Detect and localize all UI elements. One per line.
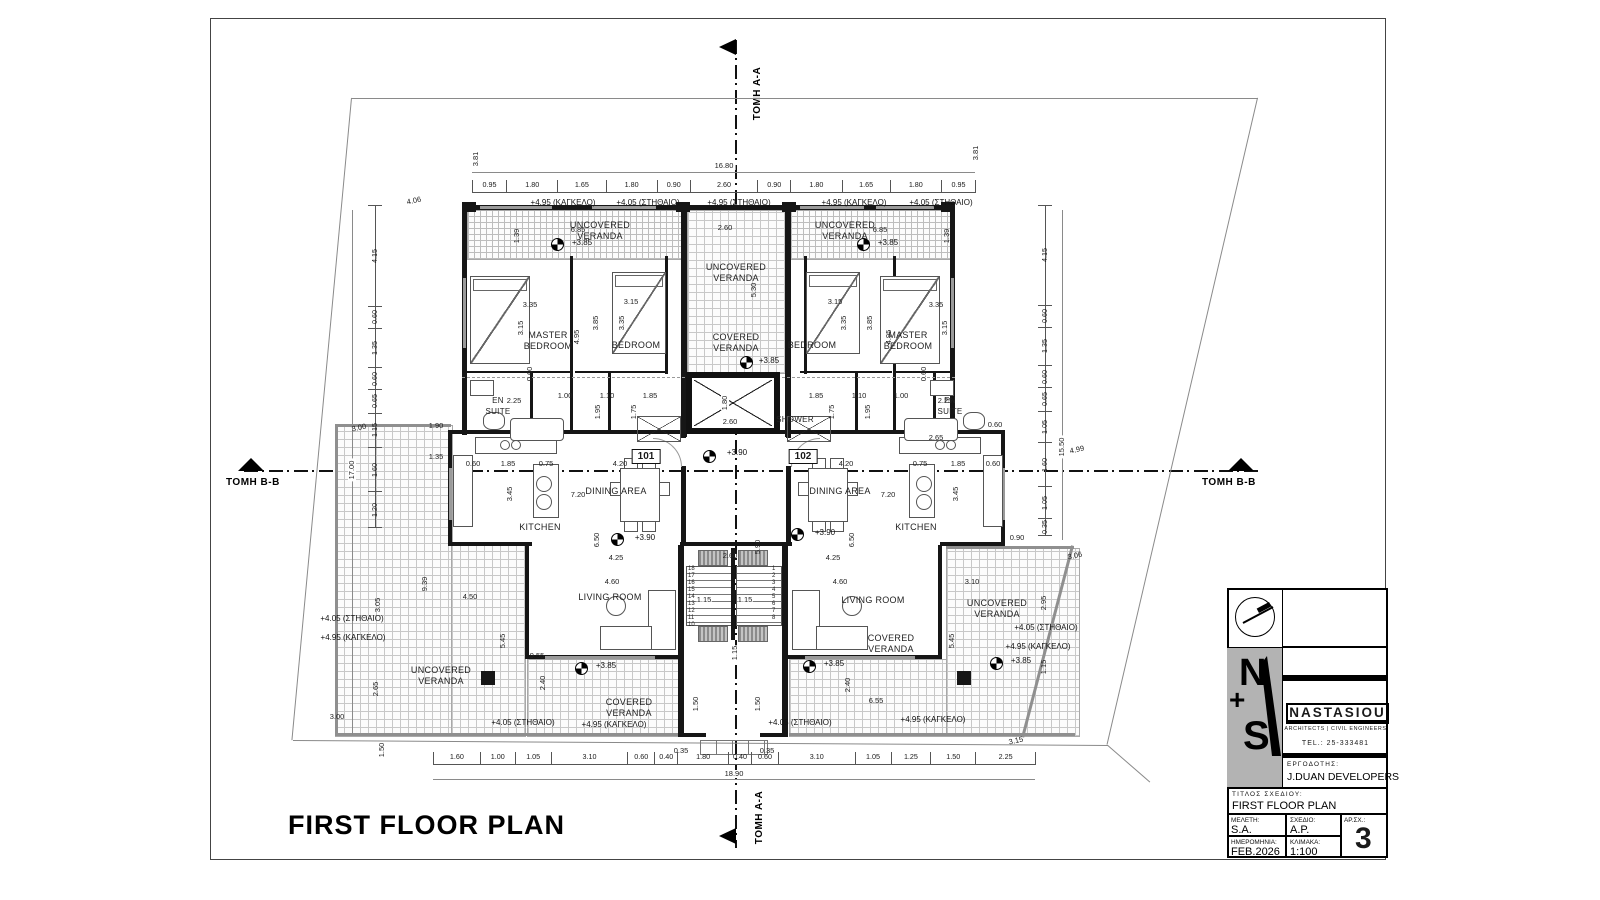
- wall: [785, 205, 791, 437]
- date-value: FEB.2026: [1231, 846, 1280, 858]
- dim: 5.90: [754, 540, 762, 555]
- dim: 1.00: [894, 392, 909, 400]
- landing-mat: [698, 626, 728, 642]
- dim: 1.75: [828, 405, 836, 420]
- room-label-living-room: LIVING ROOM: [841, 595, 904, 606]
- dim-segment: 0.60: [627, 752, 654, 765]
- dim: 1.75: [630, 405, 638, 420]
- dim-17: 17.00: [348, 459, 356, 482]
- dim: 3.45: [952, 487, 960, 502]
- veranda-hatch-left-b: [451, 545, 526, 737]
- parapet: [789, 733, 1075, 736]
- dim-segment: 4.15: [1038, 205, 1052, 305]
- study-value: S.A.: [1231, 824, 1252, 836]
- dim-line-1550: [1062, 210, 1063, 540]
- dim-segment: 1.80: [890, 180, 941, 193]
- level-annotation: +4.95 (ΚΑΓΚΕΛΟ): [1006, 642, 1071, 651]
- dim-chain-top: 0.951.801.651.800.902.600.901.801.651.80…: [472, 180, 976, 193]
- level-symbol-icon: [703, 450, 716, 463]
- dim-segment: 1.05: [1038, 486, 1052, 518]
- stair-number: 2: [772, 573, 775, 580]
- dim-segment: 4.15: [368, 205, 382, 306]
- dim-total-bottom: 18.90: [723, 770, 746, 778]
- dim-segment: 1.00: [480, 752, 515, 765]
- dim: 3.81: [972, 146, 980, 161]
- level-symbol-icon: [990, 657, 1003, 670]
- dim: 4.60: [833, 578, 848, 586]
- stair-number: 5: [772, 594, 775, 601]
- date-label: ΗΜΕΡΟΜΗΝΙΑ:: [1231, 839, 1277, 846]
- column: [957, 671, 971, 685]
- window: [449, 468, 452, 520]
- shower-tray: [637, 416, 681, 442]
- level-annotation: +4.05 (ΣΤΗΘΑΙΟ): [1014, 623, 1077, 632]
- dim: 3.35: [523, 301, 538, 309]
- dim: 4.20: [839, 460, 854, 468]
- sink: [916, 494, 932, 510]
- dim: 1.39: [943, 229, 951, 244]
- dim: 2.40: [539, 676, 547, 691]
- room-label-dining-area: DINING AREA: [585, 486, 646, 497]
- level-symbol-icon: [740, 356, 753, 369]
- unit-number-101: 101: [632, 449, 661, 464]
- dim-segment: 1.65: [842, 180, 890, 193]
- stair-number: 6: [772, 601, 775, 608]
- dim: 3.85: [866, 316, 874, 331]
- wall: [678, 733, 706, 737]
- dim: 1.85: [809, 392, 824, 400]
- level-symbol-icon: [803, 660, 816, 673]
- dim: 2.65: [372, 682, 380, 697]
- section-bb-arrow-left-icon: [238, 458, 264, 471]
- dim-chain-left: 4.150.601.350.600.651.151.601.20: [368, 205, 382, 528]
- level-symbol-icon: [575, 662, 588, 675]
- dim: 1.50: [754, 697, 762, 712]
- dim: 4.95: [573, 330, 581, 345]
- wall: [462, 371, 572, 373]
- wall: [680, 542, 792, 546]
- wall: [608, 372, 611, 432]
- dim: 1.10: [600, 392, 615, 400]
- sofa: [600, 626, 652, 650]
- room-label-uncovered-veranda: UNCOVERED VERANDA: [706, 262, 766, 283]
- chair: [642, 521, 656, 532]
- room-label-bedroom: BEDROOM: [788, 340, 837, 351]
- spot-level: +3.85: [878, 238, 898, 247]
- room-label-covered-veranda: COVERED VERANDA: [713, 332, 760, 353]
- sink: [916, 476, 932, 492]
- sofa: [648, 590, 676, 650]
- stair-number: 8: [772, 615, 775, 622]
- level-annotation: +4.95 (ΣΤΗΘΑΙΟ): [707, 198, 770, 207]
- wall: [575, 371, 667, 373]
- title-block-divider: [1285, 813, 1287, 858]
- dim: 0.60: [526, 367, 534, 382]
- dim: 4.50: [463, 593, 478, 601]
- stair-number: 10: [688, 622, 695, 629]
- dim-segment: 1.35: [1038, 327, 1052, 365]
- dim: 4.25: [609, 554, 624, 562]
- wall: [855, 372, 858, 432]
- firm-name: NASTASIOU: [1286, 703, 1389, 724]
- dim-segment: 1.60: [433, 752, 480, 765]
- wall: [760, 733, 788, 737]
- hob-burner: [511, 440, 521, 450]
- spot-level: +3.85: [596, 661, 616, 670]
- dim-segment: 1.50: [930, 752, 975, 765]
- chair: [798, 482, 809, 496]
- north-arrow-box: [1227, 588, 1283, 648]
- level-annotation: +4.95 (ΚΑΓΚΕΛΟ): [901, 715, 966, 724]
- drawing-title-value: FIRST FLOOR PLAN: [1232, 800, 1336, 812]
- dim: 1.85: [643, 392, 658, 400]
- dim-segment: 1.25: [891, 752, 931, 765]
- title-block-divider: [1340, 813, 1342, 858]
- dim: 5.30: [750, 283, 758, 298]
- stair-number: 14: [688, 594, 695, 601]
- level-annotation: +4.95 (ΚΑΓΚΕΛΟ): [582, 720, 647, 729]
- dim: 3.35: [840, 316, 848, 331]
- column: [782, 202, 796, 212]
- level-symbol-icon: [551, 238, 564, 251]
- landing-mat: [738, 626, 768, 642]
- hob-burner: [500, 440, 510, 450]
- level-symbol-icon: [611, 533, 624, 546]
- level-annotation: +4.95 (ΚΑΓΚΕΛΟ): [321, 633, 386, 642]
- room-label-living-room: LIVING ROOM: [578, 592, 641, 603]
- dim: 0.75: [539, 460, 554, 468]
- stair-divider: [731, 548, 735, 640]
- sheet-number-value: 3: [1355, 822, 1372, 856]
- dim: 1.95: [594, 405, 602, 420]
- client-label: ΕΡΓΟΔΟΤΗΣ:: [1287, 761, 1339, 768]
- dim-segment: 1.35: [368, 328, 382, 367]
- dim-segment: 1.05: [515, 752, 551, 765]
- room-label-uncovered-veranda: UNCOVERED VERANDA: [815, 220, 875, 241]
- dim: 3.85: [592, 316, 600, 331]
- dim: 2.60: [723, 418, 738, 426]
- dim-segment: 1.60: [1038, 442, 1052, 486]
- wall: [782, 545, 788, 737]
- dim: 7.20: [881, 491, 896, 499]
- dim: 0.60: [920, 367, 928, 382]
- section-aa-label-bottom: TOMH A-A: [754, 791, 765, 844]
- dim-segment: 0.95: [472, 180, 506, 193]
- section-aa-arrow-top-icon: [719, 39, 736, 55]
- dim: 3.00: [330, 713, 345, 721]
- dim: 0.35: [674, 747, 689, 755]
- study-label: ΜΕΛΕΤΗ:: [1231, 817, 1259, 824]
- dim: 1.90: [429, 422, 444, 430]
- site-boundary-top: [352, 98, 1258, 99]
- spot-level: +3.85: [1011, 656, 1031, 665]
- room-label-kitchen: KITCHEN: [895, 522, 937, 533]
- dim-segment: 3.10: [551, 752, 628, 765]
- logo-cell: N + S: [1227, 648, 1283, 787]
- room-label-en-suite: EN SUITE: [485, 396, 510, 417]
- door-opening: [681, 438, 686, 466]
- drawing-title-label: ΤΙΤΛΟΣ ΣΧΕΔΙΟΥ:: [1232, 791, 1303, 798]
- wall: [938, 545, 942, 659]
- window: [545, 656, 655, 659]
- room-label-uncovered-veranda: UNCOVERED VERANDA: [570, 220, 630, 241]
- dim: 1.00: [558, 392, 573, 400]
- dim: 1.39: [513, 229, 521, 244]
- dim-total-line-top: [472, 172, 975, 173]
- parapet: [946, 546, 1074, 549]
- spot-level: +3.90: [727, 448, 747, 457]
- stair-numbers-down: 181716151413121110: [688, 566, 695, 629]
- stair-numbers-up: 12345678: [772, 566, 775, 622]
- dim: 9.39: [421, 577, 429, 592]
- stair-number: 16: [688, 580, 695, 587]
- dim-segment: 1.80: [506, 180, 557, 193]
- dim: 1.50: [692, 697, 700, 712]
- spot-level: +3.85: [759, 356, 779, 365]
- room-label-kitchen: KITCHEN: [519, 522, 561, 533]
- dim: 3.35: [618, 316, 626, 331]
- dim-segment: 0.60: [1038, 365, 1052, 387]
- window: [463, 278, 466, 348]
- dim-segment: 1.80: [790, 180, 841, 193]
- dim: 0.35: [760, 747, 775, 755]
- logo-bar: [1283, 675, 1388, 681]
- dim: 1.15: [731, 646, 739, 661]
- firm-subtitle: ARCHITECTS | CIVIL ENGINEERS: [1284, 726, 1387, 732]
- dim: 3.45: [506, 487, 514, 502]
- dim: 1.95: [864, 405, 872, 420]
- dim-segment: 1.80: [606, 180, 657, 193]
- dim: 7.20: [571, 491, 586, 499]
- dim: 6.50: [848, 533, 856, 548]
- dim-segment: 1.60: [368, 447, 382, 491]
- chair: [624, 521, 638, 532]
- section-aa-label-top: TOMH A-A: [752, 67, 763, 120]
- dim-segment: 0.60: [1038, 305, 1052, 327]
- dim-segment: 0.90: [657, 180, 690, 193]
- dim: 4.20: [613, 460, 628, 468]
- spot-level: +3.90: [635, 533, 655, 542]
- dim: 2.40: [844, 678, 852, 693]
- stair-number: 1: [772, 566, 775, 573]
- stair-number: 17: [688, 573, 695, 580]
- plan-title: FIRST FLOOR PLAN: [288, 810, 565, 841]
- column: [481, 671, 495, 685]
- dim-total-top: 16.80: [713, 162, 736, 170]
- dim: 3.81: [472, 152, 480, 167]
- sink: [536, 476, 552, 492]
- stair-number: 3: [772, 580, 775, 587]
- logo-letter-s: S: [1243, 716, 1270, 756]
- room-label-bedroom: BEDROOM: [612, 340, 661, 351]
- parapet: [335, 733, 688, 736]
- dim-chain-right: 4.150.601.350.600.651.051.601.050.35: [1038, 205, 1052, 536]
- wall: [678, 545, 684, 737]
- stair-number: 7: [772, 608, 775, 615]
- dim: 3.35: [929, 301, 944, 309]
- stair-number: 18: [688, 566, 695, 573]
- dim-segment: 0.65: [1038, 387, 1052, 410]
- dim: 3.15: [941, 321, 949, 336]
- spot-level: +3.85: [824, 659, 844, 668]
- dim-segment: 1.65: [557, 180, 605, 193]
- window: [805, 656, 915, 659]
- chair: [659, 482, 670, 496]
- dim-segment: 0.95: [941, 180, 975, 193]
- dim: 3.10: [965, 578, 980, 586]
- logo-letter-plus: +: [1229, 686, 1245, 714]
- spot-level: +3.90: [815, 528, 835, 537]
- room-label-dining-area: DINING AREA: [809, 486, 870, 497]
- dim: 6.50: [593, 533, 601, 548]
- room-label-en-suite: EN SUITE: [937, 396, 962, 417]
- dim-segment: 3.10: [778, 752, 855, 765]
- stair-number: 13: [688, 601, 695, 608]
- wall: [940, 542, 1005, 546]
- dim-segment: 0.65: [368, 389, 382, 412]
- dim-segment: 2.25: [975, 752, 1035, 765]
- dim: 1.35: [429, 453, 444, 461]
- dim-segment: 0.90: [757, 180, 790, 193]
- dim: 3.15: [828, 298, 843, 306]
- dim: 2.60: [718, 224, 733, 232]
- drawn-label: ΣΧΕΔΙΟ:: [1290, 817, 1315, 824]
- dim: 1.50: [378, 743, 386, 758]
- stair-number: 15: [688, 587, 695, 594]
- column: [462, 202, 476, 212]
- level-annotation: +4.05 (ΣΤΗΘΑΙΟ): [768, 718, 831, 727]
- window: [951, 278, 954, 348]
- level-annotation: +4.05 (ΣΤΗΘΑΙΟ): [616, 198, 679, 207]
- client-name: J.DUAN DEVELOPERS: [1287, 771, 1399, 783]
- dim-segment: 1.05: [855, 752, 891, 765]
- hob-burner: [946, 440, 956, 450]
- parapet: [335, 424, 338, 735]
- dim: 1.85: [951, 460, 966, 468]
- dim: 0.75: [913, 460, 928, 468]
- washbasin: [930, 380, 954, 396]
- dim: 1.80: [721, 396, 729, 411]
- room-label-covered-veranda: COVERED VERANDA: [606, 697, 653, 718]
- dim: 5.45: [499, 634, 507, 649]
- dim-segment: 0.60: [368, 367, 382, 389]
- logo-bar: [1283, 753, 1388, 758]
- section-bb-label-right: TOMH B-B: [1202, 477, 1256, 488]
- room-label-covered-veranda: COVERED VERANDA: [868, 633, 915, 654]
- room-label-master-bedroom: MASTER BEDROOM: [524, 330, 573, 351]
- title-block-divider: [1283, 646, 1388, 648]
- stair-number: 12: [688, 608, 695, 615]
- drawn-value: A.P.: [1290, 824, 1309, 836]
- dim: 2.60: [723, 552, 738, 560]
- dim: 0.90: [1010, 534, 1025, 542]
- bathtub: [510, 418, 564, 441]
- dim: 0.60: [466, 460, 481, 468]
- room-label-uncovered-veranda: UNCOVERED VERANDA: [411, 665, 471, 686]
- dim: 4.60: [605, 578, 620, 586]
- dim-1550: 15.50: [1058, 436, 1066, 459]
- dim-chain-bottom: 1.601.001.053.100.600.401.800.400.603.10…: [433, 752, 1036, 765]
- dim-segment: 1.05: [1038, 411, 1052, 443]
- dim: 9.55: [530, 652, 545, 660]
- scale-value: 1:100: [1290, 846, 1318, 858]
- scale-label: ΚΛΙΜΑΚΑ:: [1290, 839, 1320, 846]
- dim-segment: 0.40: [728, 752, 751, 765]
- wall: [448, 542, 532, 546]
- dim: 1.15: [738, 596, 753, 604]
- stair-number: 11: [688, 615, 695, 622]
- dim: 4.25: [826, 554, 841, 562]
- level-annotation: +4.05 (ΣΤΗΘΑΙΟ): [320, 614, 383, 623]
- dim-segment: 0.60: [368, 306, 382, 328]
- level-symbol-icon: [791, 528, 804, 541]
- dim: 1.85: [501, 460, 516, 468]
- dim-total-line-bottom: [433, 779, 1035, 780]
- dim: 0.60: [988, 421, 1003, 429]
- stair-number: 4: [772, 587, 775, 594]
- sofa: [816, 626, 868, 650]
- drawing-sheet: TOMH A-A TOMH A-A TOMH B-B TOMH B-B: [0, 0, 1600, 900]
- dim-segment: 2.60: [690, 180, 757, 193]
- dim: 3.05: [374, 598, 382, 613]
- room-label-shower: SHOWER: [776, 415, 814, 426]
- room-label-master-bedroom: MASTER BEDROOM: [884, 330, 933, 351]
- dim: 1.10: [852, 392, 867, 400]
- dim: 2.65: [929, 434, 944, 442]
- section-bb-arrow-right-icon: [1228, 458, 1254, 471]
- level-annotation: +4.95 (ΚΑΓΚΕΛΟ): [822, 198, 887, 207]
- washbasin: [470, 380, 494, 396]
- dim-segment: 0.35: [1038, 518, 1052, 535]
- dim-segment: 1.15: [368, 413, 382, 447]
- unit-number-102: 102: [789, 449, 818, 464]
- dim-segment: 1.20: [368, 491, 382, 527]
- level-annotation: +4.05 (ΣΤΗΘΑΙΟ): [491, 718, 554, 727]
- title-block-divider: [1227, 813, 1388, 815]
- dim: 2.95: [1040, 596, 1048, 611]
- wall: [800, 371, 892, 373]
- firm-telephone: TEL.: 25-333481: [1284, 740, 1387, 747]
- section-aa-arrow-bottom-icon: [719, 828, 736, 844]
- wall: [525, 545, 529, 659]
- dim: 3.15: [624, 298, 639, 306]
- room-label-uncovered-veranda: UNCOVERED VERANDA: [967, 598, 1027, 619]
- sink: [536, 494, 552, 510]
- toilet: [963, 412, 985, 430]
- level-annotation: +4.95 (ΚΑΓΚΕΛΟ): [531, 198, 596, 207]
- section-bb-label-left: TOMH B-B: [226, 477, 280, 488]
- title-block-divider: [1227, 787, 1388, 789]
- dim: 0.60: [986, 460, 1001, 468]
- dim: 1.15: [1040, 660, 1048, 675]
- level-annotation: +4.05 (ΣΤΗΘΑΙΟ): [909, 198, 972, 207]
- dim: 1.15: [697, 596, 712, 604]
- dim: 6.55: [869, 697, 884, 705]
- dim: 5.45: [948, 634, 956, 649]
